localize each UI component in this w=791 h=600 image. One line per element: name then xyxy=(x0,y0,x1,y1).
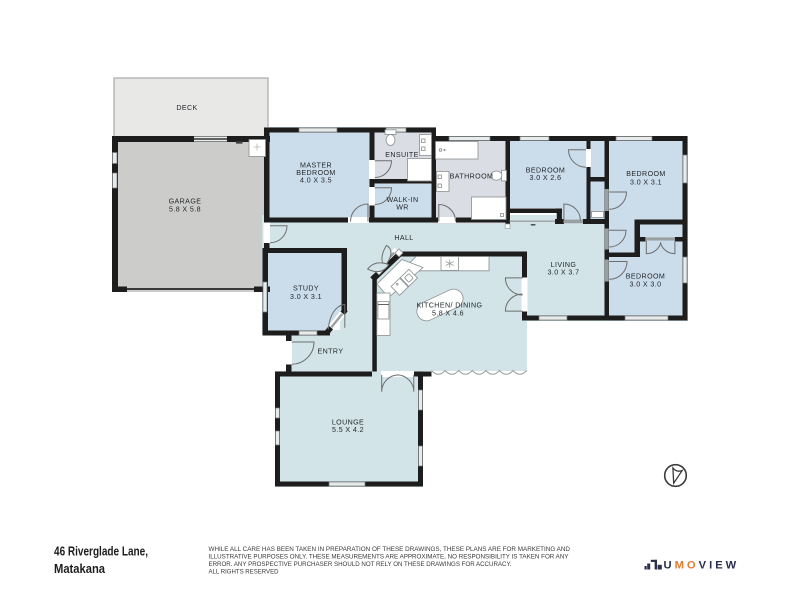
svg-text:Matakana: Matakana xyxy=(54,561,106,576)
svg-text:BEDROOM: BEDROOM xyxy=(626,170,665,178)
svg-text:UMOVIEW: UMOVIEW xyxy=(664,560,740,572)
svg-text:STUDY: STUDY xyxy=(293,285,319,293)
svg-text:DECK: DECK xyxy=(176,104,197,112)
svg-text:KITCHEN/ DINING: KITCHEN/ DINING xyxy=(417,302,483,310)
svg-text:5.8 X 5.8: 5.8 X 5.8 xyxy=(169,206,201,214)
svg-text:46 Riverglade Lane,: 46 Riverglade Lane, xyxy=(54,544,148,559)
svg-text:HALL: HALL xyxy=(394,234,413,242)
svg-text:5.8 X 4.6: 5.8 X 4.6 xyxy=(432,310,464,318)
svg-text:BEDROOM: BEDROOM xyxy=(626,273,665,281)
svg-text:BATHROOM: BATHROOM xyxy=(450,173,494,181)
svg-text:ERROR. ANY PROSPECTIVE PURCHAS: ERROR. ANY PROSPECTIVE PURCHASER SHOULD … xyxy=(209,561,512,568)
svg-text:ALL RIGHTS RESERVED: ALL RIGHTS RESERVED xyxy=(209,569,280,576)
svg-text:GARAGE: GARAGE xyxy=(169,198,202,206)
svg-text:ENTRY: ENTRY xyxy=(318,348,344,356)
svg-text:4.0 X 3.5: 4.0 X 3.5 xyxy=(300,177,332,185)
svg-text:3.0 X 2.6: 3.0 X 2.6 xyxy=(530,174,562,182)
svg-text:3.0 X 3.0: 3.0 X 3.0 xyxy=(630,281,662,289)
svg-text:5.5 X 4.2: 5.5 X 4.2 xyxy=(332,426,364,434)
svg-text:WHILE ALL CARE HAS BEEN TAKEN: WHILE ALL CARE HAS BEEN TAKEN IN PREPARA… xyxy=(209,546,571,553)
svg-text:WR: WR xyxy=(396,204,409,212)
svg-text:ILLUSTRATIVE PURPOSES ONLY. TH: ILLUSTRATIVE PURPOSES ONLY. THESE MEASUR… xyxy=(209,554,569,561)
svg-text:3.0 X 3.7: 3.0 X 3.7 xyxy=(548,269,580,277)
svg-text:ENSUITE: ENSUITE xyxy=(385,151,419,159)
svg-text:3.0 X 3.1: 3.0 X 3.1 xyxy=(630,179,662,187)
svg-text:3.0 X 3.1: 3.0 X 3.1 xyxy=(290,293,322,301)
